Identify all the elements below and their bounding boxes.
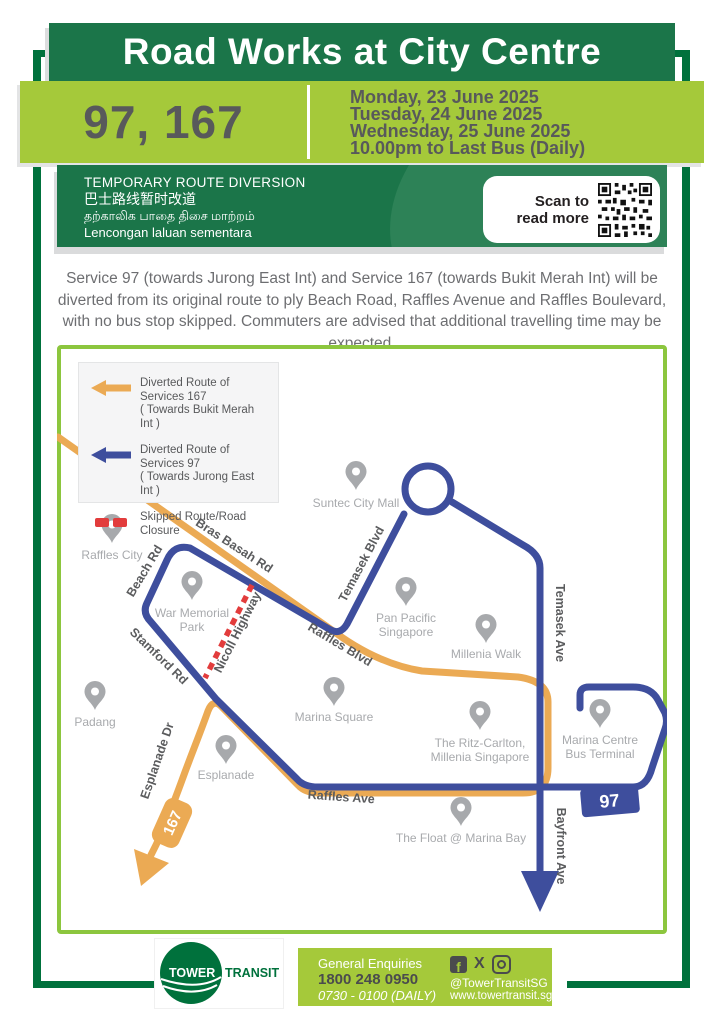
legend-closure-line1: Skipped Route/Road Closure [140,511,268,538]
frame-left [33,50,41,988]
label-ritz-2: Millenia Singapore [431,750,530,764]
pin-pan-pacific [396,577,417,606]
label-suntec: Suntec City Mall [313,496,400,510]
pin-padang [85,681,106,710]
pin-millenia-walk [476,614,497,643]
enquiries-phone: 1800 248 0950 [318,971,436,988]
tower-transit-logo-card: TOWER TRANSIT [155,939,283,1008]
badge-97-label: 97 [599,790,621,812]
label-the-float: The Float @ Marina Bay [396,831,526,845]
date-line: 10.00pm to Last Bus (Daily) [350,140,585,157]
route-97-arrowhead [521,871,559,912]
logo-word-transit: TRANSIT [225,966,280,980]
pin-esplanade [216,735,237,764]
website-url: www.towertransit.sg [450,990,546,1003]
pin-marina-centre [590,699,611,728]
scan-label: Scan to read more [516,193,589,227]
legend-item-167: Diverted Route of Services 167 ( Towards… [91,377,268,431]
logo-word-tower: TOWER [169,966,215,980]
pin-suntec-city-mall [346,461,367,490]
label-esplanade: Esplanade [198,768,255,782]
social-handle: @TowerTransitSG [450,976,546,990]
label-war-memorial-1: War Memorial [155,606,229,620]
legend-item-closure: Skipped Route/Road Closure [91,511,268,538]
service-date-band: 97, 167 Monday, 23 June 2025 Tuesday, 24… [20,81,704,163]
scan-card: Scan to read more [483,176,660,243]
social-icons: f X [450,954,546,974]
facebook-icon: f [450,956,467,973]
x-twitter-icon: X [474,955,485,973]
road-temasek-ave: Temasek Ave [553,584,567,662]
footer-contact-box: General Enquiries 1800 248 0950 0730 - 0… [298,948,552,1006]
dates-block: Monday, 23 June 2025 Tuesday, 24 June 20… [350,89,585,157]
pin-war-memorial-park [182,571,203,600]
route-97-suntec-loop [405,466,451,512]
tower-transit-logo: TOWER TRANSIT [155,939,283,1008]
service-numbers: 97, 167 [20,81,307,163]
road-nicoll: Nicoll Highway [211,589,264,675]
label-pan-pacific-2: Singapore [379,625,434,639]
enquiries-label: General Enquiries [318,956,436,971]
blue-left-arrow-icon [91,447,131,463]
label-marina-centre-1: Marina Centre [562,733,638,747]
red-dashes-icon [91,514,131,530]
road-bayfront-ave: Bayfront Ave [554,808,568,885]
legend-item-97: Diverted Route of Services 97 ( Towards … [91,444,268,498]
notice-malay: Lencongan laluan sementara [84,225,306,240]
notice-lines: TEMPORARY ROUTE DIVERSION 巴士路线暂时改道 தற்கா… [84,175,306,240]
enquiries-hours: 0730 - 0100 (DAILY) [318,988,436,1003]
orange-left-arrow-icon [91,380,131,396]
band-divider [307,85,310,159]
poster: Road Works at City Centre 97, 167 Monday… [0,0,724,1024]
legend-97-line2: ( Towards Jurong East Int ) [140,471,268,498]
legend-97-line1: Diverted Route of Services 97 [140,444,268,471]
notice-tamil: தற்காலிக பாதை திசை மாற்றம் [84,208,306,225]
page-title: Road Works at City Centre [123,31,602,73]
label-marina-square: Marina Square [295,710,374,724]
frame-bottom-right [567,981,690,988]
description-paragraph: Service 97 (towards Jurong East Int) and… [42,268,682,354]
frame-right [682,50,690,988]
instagram-icon [492,955,511,974]
notice-english: TEMPORARY ROUTE DIVERSION [84,175,306,191]
title-banner: Road Works at City Centre [49,23,675,81]
pin-ritz-carlton [470,701,491,730]
label-millenia-walk: Millenia Walk [451,647,522,661]
map-legend: Diverted Route of Services 167 ( Towards… [78,362,279,503]
notice-chinese: 巴士路线暂时改道 [84,191,306,208]
label-ritz-1: The Ritz-Carlton, [435,736,526,750]
label-raffles-city: Raffles City [81,548,142,562]
legend-167-line2: ( Towards Bukit Merah Int ) [140,404,268,431]
label-pan-pacific-1: Pan Pacific [376,611,436,625]
legend-167-line1: Diverted Route of Services 167 [140,377,268,404]
label-marina-centre-2: Bus Terminal [565,747,634,761]
pin-marina-square [324,677,345,706]
road-esplanade-dr: Esplanade Dr [138,721,177,801]
frame-bottom-left [33,981,155,988]
pin-the-float [451,797,472,826]
qr-code-icon [598,183,652,237]
label-war-memorial-2: Park [180,620,206,634]
label-padang: Padang [74,715,115,729]
